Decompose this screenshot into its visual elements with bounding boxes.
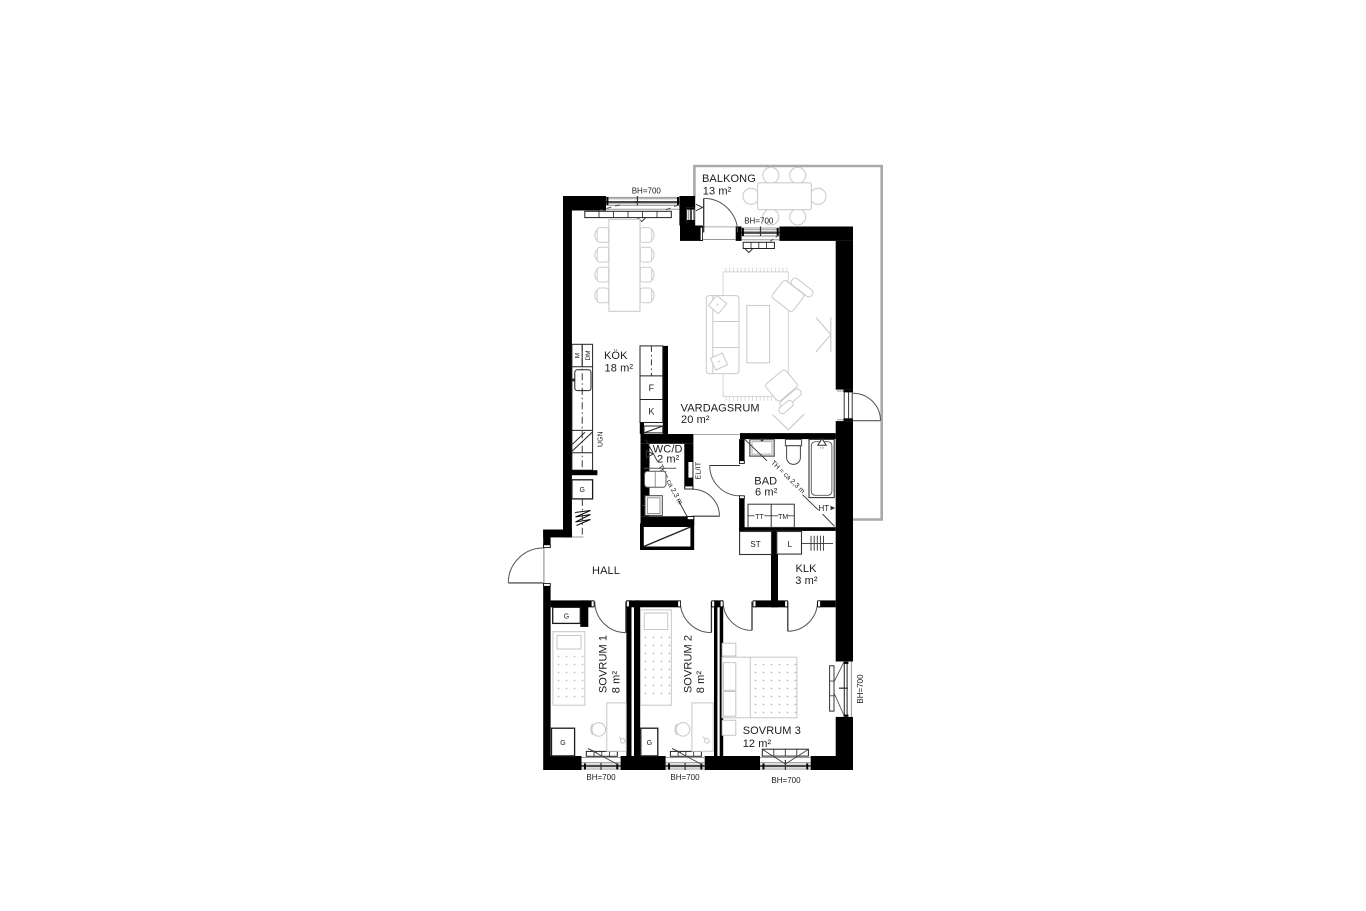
svg-text:F: F xyxy=(649,383,655,393)
svg-text:BH=700: BH=700 xyxy=(632,187,662,196)
svg-text:18 m²: 18 m² xyxy=(605,362,634,374)
svg-text:2 m²: 2 m² xyxy=(657,454,680,466)
svg-text:BH=700: BH=700 xyxy=(586,773,616,782)
svg-text:BH=700: BH=700 xyxy=(744,217,774,226)
svg-text:BH=700: BH=700 xyxy=(670,773,700,782)
svg-text:3 m²: 3 m² xyxy=(795,575,818,587)
svg-text:20 m²: 20 m² xyxy=(681,414,710,426)
svg-text:BAD: BAD xyxy=(754,475,777,487)
svg-text:HALL: HALL xyxy=(592,565,620,577)
svg-text:12 m²: 12 m² xyxy=(743,738,772,750)
svg-text:G: G xyxy=(647,740,652,747)
svg-text:TP: TP xyxy=(820,447,825,451)
svg-text:G: G xyxy=(560,740,565,747)
svg-text:6 m²: 6 m² xyxy=(755,487,778,499)
svg-text:G: G xyxy=(579,487,584,494)
svg-text:TT: TT xyxy=(755,514,764,521)
svg-text:ST: ST xyxy=(750,540,760,549)
svg-text:8 m²: 8 m² xyxy=(695,671,707,694)
svg-text:TM: TM xyxy=(778,514,788,521)
svg-text:SOVRUM 3: SOVRUM 3 xyxy=(743,725,801,737)
svg-text:UGN: UGN xyxy=(598,431,605,447)
svg-text:13 m²: 13 m² xyxy=(703,186,732,198)
svg-text:L: L xyxy=(788,540,793,549)
svg-text:DM: DM xyxy=(585,350,592,360)
svg-text:SOVRUM 1: SOVRUM 1 xyxy=(598,635,610,693)
svg-text:M: M xyxy=(575,353,582,358)
svg-text:HT: HT xyxy=(819,504,830,513)
svg-text:KLK: KLK xyxy=(795,563,817,575)
svg-text:K: K xyxy=(648,407,654,417)
svg-text:BH=700: BH=700 xyxy=(771,776,801,785)
svg-text:EL/IT: EL/IT xyxy=(694,461,703,479)
svg-text:VARDAGSRUM: VARDAGSRUM xyxy=(681,403,760,415)
svg-text:SOVRUM 2: SOVRUM 2 xyxy=(682,635,694,693)
svg-text:8 m²: 8 m² xyxy=(611,671,623,694)
svg-text:BH=700: BH=700 xyxy=(856,674,865,704)
svg-text:G: G xyxy=(564,613,569,620)
svg-text:KÖK: KÖK xyxy=(604,350,628,362)
svg-text:BALKONG: BALKONG xyxy=(702,173,756,185)
